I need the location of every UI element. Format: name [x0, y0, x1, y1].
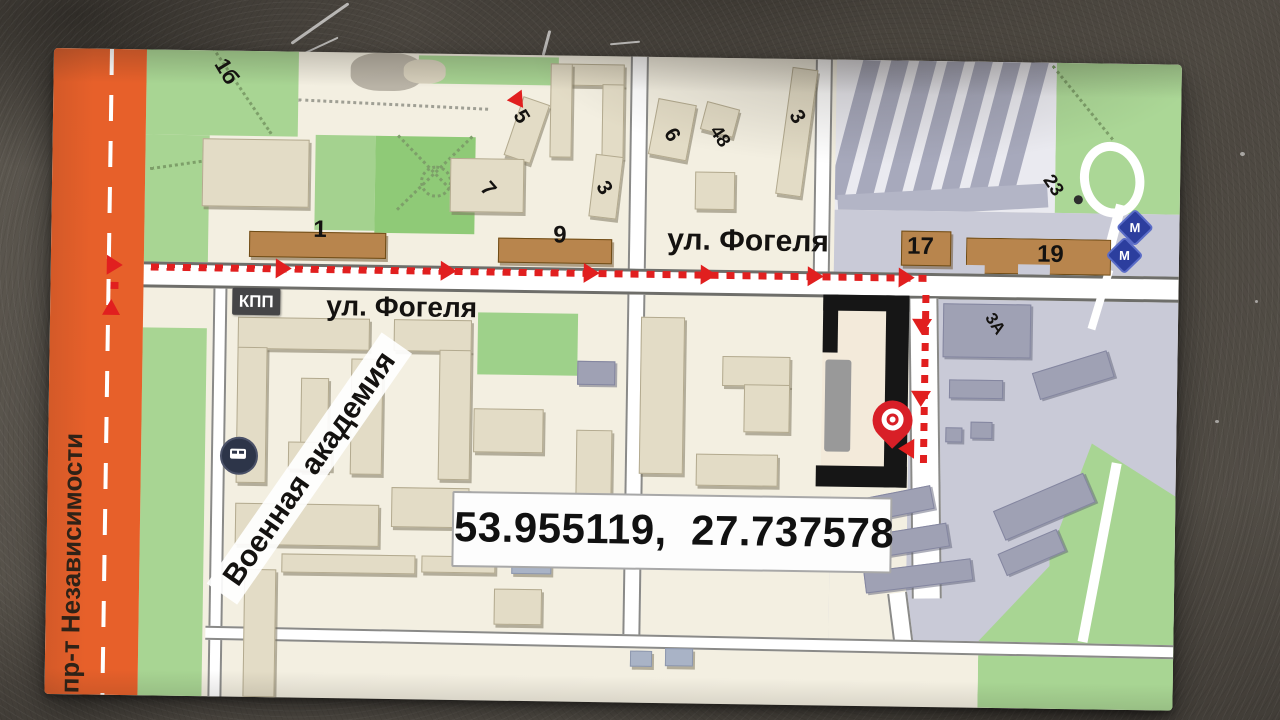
map-card: пр-т Независимости ул. Фогеля ул. Фогеля…	[44, 48, 1181, 711]
route-arrow-right	[701, 265, 717, 285]
route-arrow-right	[899, 268, 915, 288]
building	[949, 379, 1003, 399]
avenue-stripe: пр-т Независимости	[44, 48, 147, 695]
route-arrow-left	[898, 439, 914, 459]
road-end-dot	[1074, 195, 1083, 204]
concrete-speck	[1215, 420, 1219, 423]
building	[665, 648, 693, 666]
concrete-speck	[1255, 300, 1258, 303]
tree-cluster	[404, 59, 446, 84]
location-pin-icon	[872, 400, 913, 441]
building-3-right	[775, 67, 818, 197]
building-label-17: 17	[907, 233, 934, 261]
building	[722, 356, 790, 387]
scratch-mark	[542, 30, 552, 56]
building	[493, 589, 542, 626]
street-label-right: ул. Фогеля	[667, 223, 829, 259]
park-rect	[477, 312, 578, 375]
building	[202, 138, 310, 208]
coordinates-box: 53.955119, 27.737578	[451, 491, 892, 574]
campus-area-ne	[835, 60, 1057, 213]
building	[696, 454, 778, 487]
destination-building	[816, 465, 907, 487]
route-arrow-down	[912, 319, 932, 335]
building	[575, 430, 612, 497]
route-arrow-right	[107, 255, 123, 275]
scratch-mark	[290, 2, 349, 45]
building	[743, 384, 790, 433]
destination-building	[884, 295, 910, 487]
route-arrow-right	[584, 263, 600, 283]
route-dash	[110, 282, 118, 289]
concrete-speck	[1240, 152, 1245, 156]
building	[549, 63, 572, 157]
route-arrow-up	[102, 299, 120, 315]
building	[577, 361, 615, 386]
academy-wing	[438, 350, 472, 480]
scratch-mark	[610, 41, 640, 46]
building-label-1: 1	[313, 216, 327, 244]
building-label-19: 19	[1037, 241, 1064, 269]
building	[945, 427, 962, 442]
road-vertical-center	[628, 57, 649, 269]
footpath-dotted	[298, 98, 488, 110]
building	[601, 84, 624, 158]
route-arrow-right	[808, 266, 824, 286]
park-area	[137, 327, 206, 696]
checkpoint-badge: КПП	[232, 288, 280, 316]
building	[473, 408, 544, 453]
destination-building	[823, 294, 839, 352]
building	[695, 172, 736, 211]
building	[630, 651, 652, 667]
route-arrow-right	[276, 258, 292, 278]
building	[281, 553, 415, 574]
building	[639, 317, 685, 475]
avenue-name: пр-т Независимости	[54, 263, 104, 694]
route-arrow-right	[441, 261, 457, 281]
building-label-9: 9	[553, 221, 567, 249]
building	[970, 422, 992, 439]
building	[824, 359, 851, 451]
park-area	[144, 134, 210, 262]
route-arrow-down	[911, 391, 931, 407]
